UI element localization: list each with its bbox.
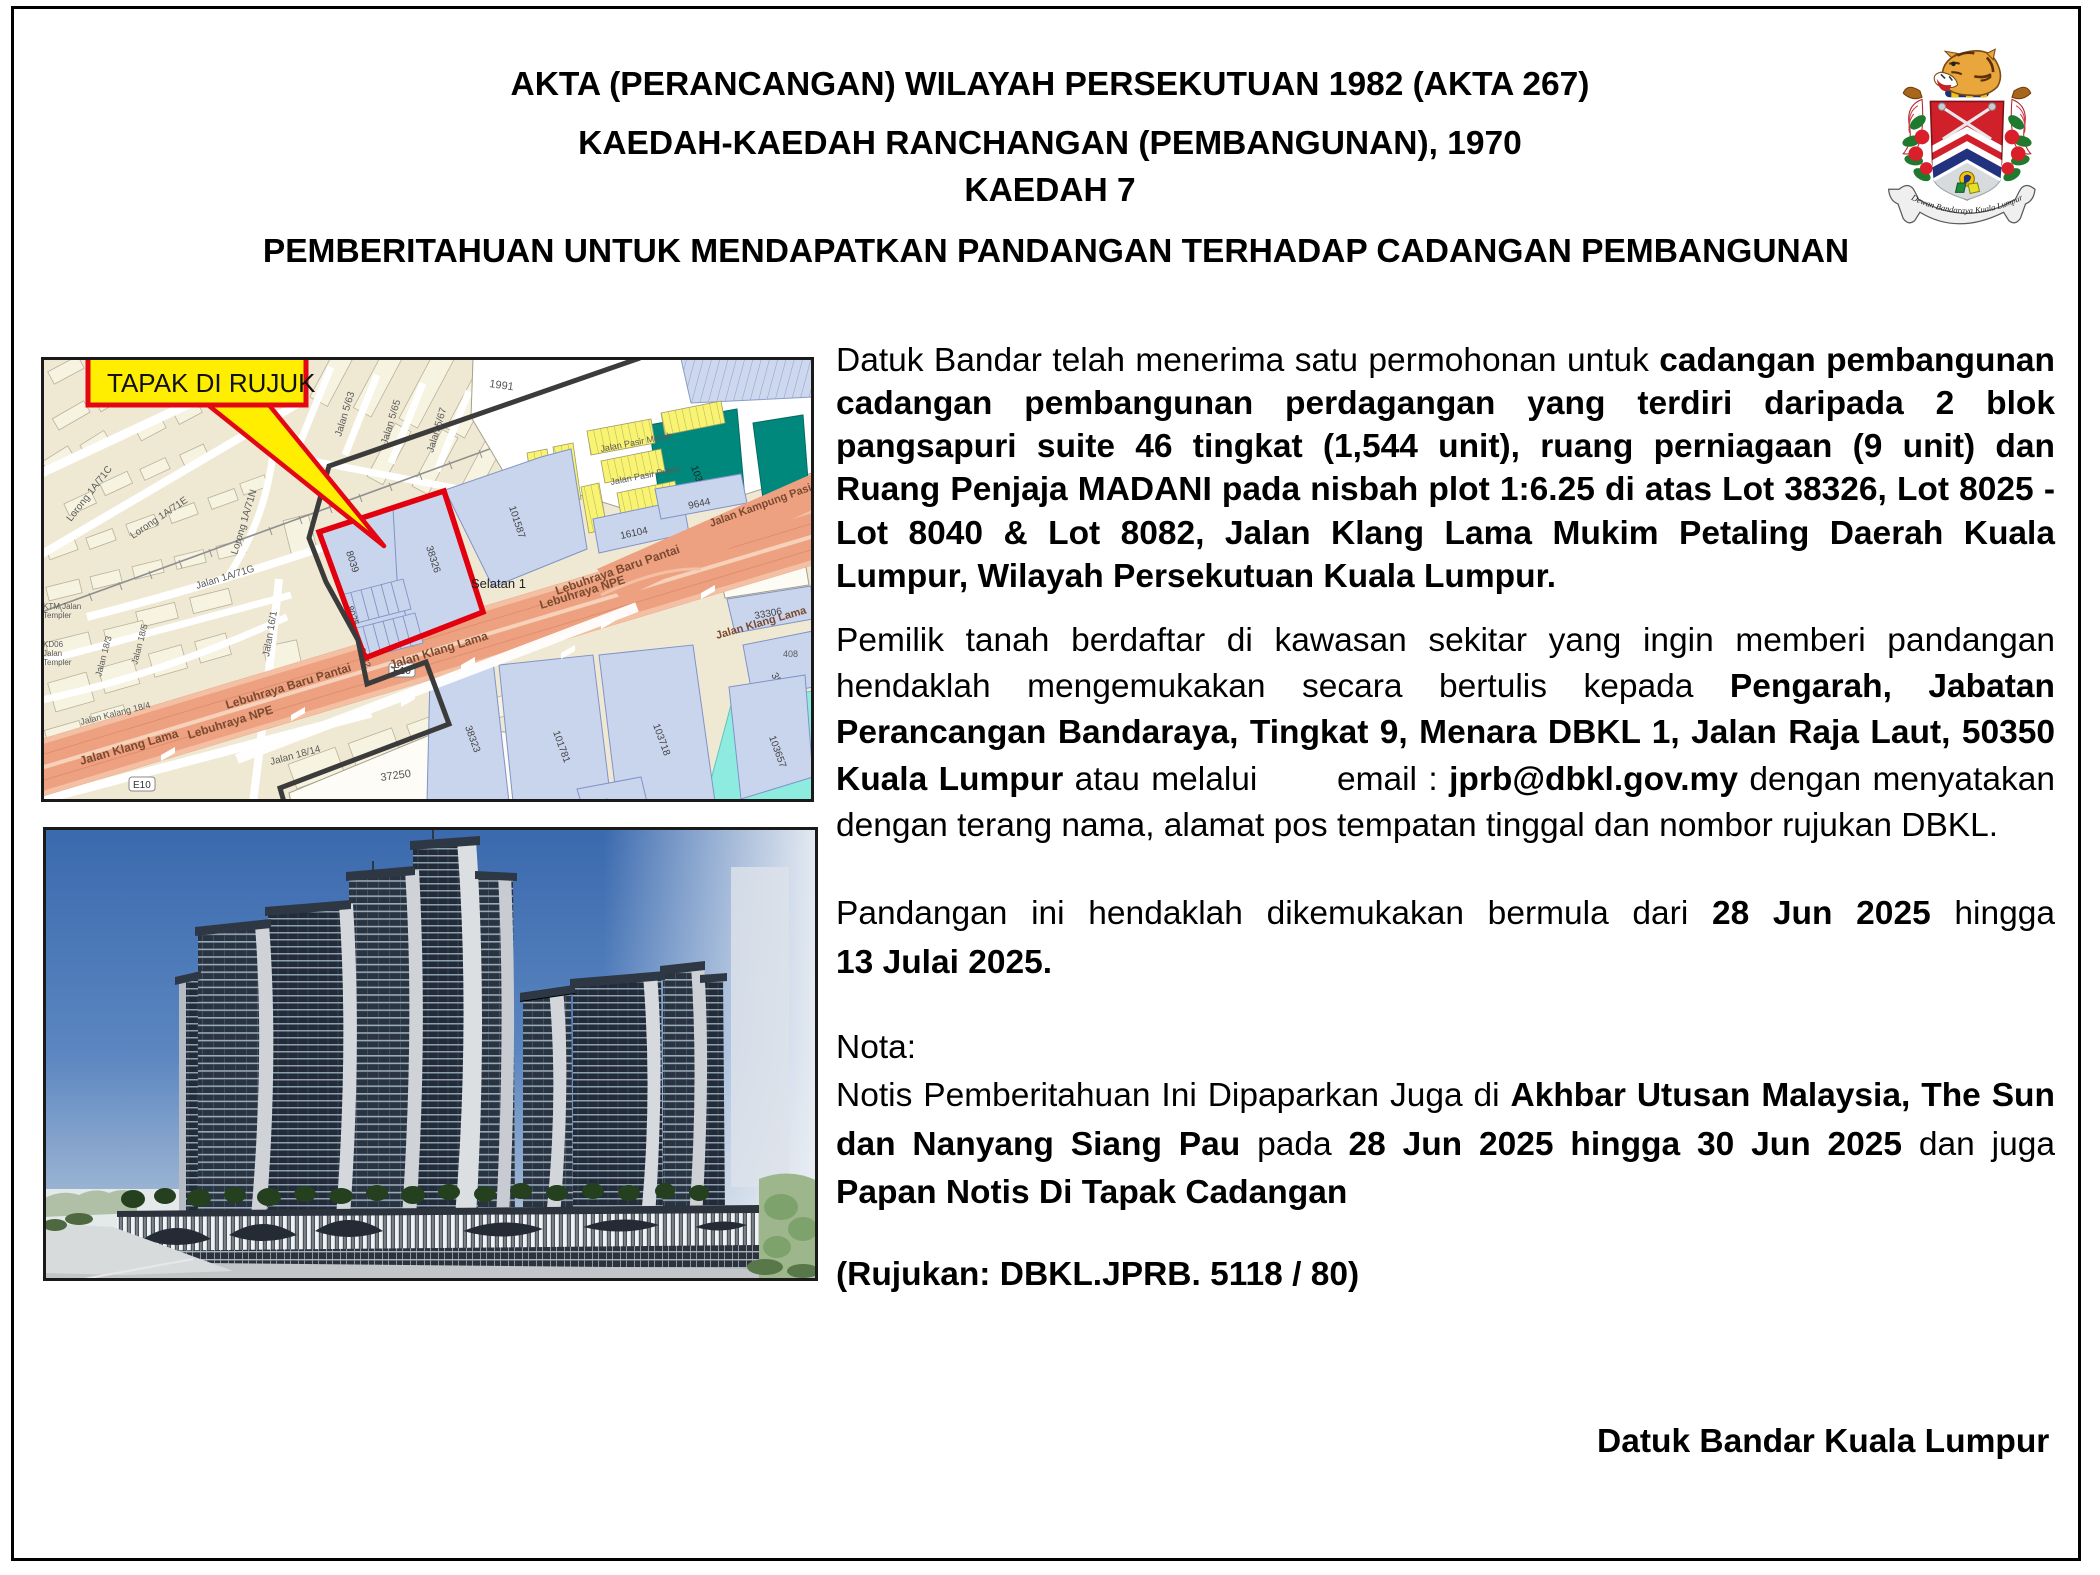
svg-text:TAPAK DI RUJUK: TAPAK DI RUJUK [107,368,316,398]
svg-text:KTM Jalan: KTM Jalan [43,602,81,611]
svg-text:E10: E10 [133,780,151,791]
svg-text:Selatan 1: Selatan 1 [471,576,526,591]
svg-text:Templer: Templer [43,611,72,620]
svg-text:Templer: Templer [43,658,72,667]
svg-text:KD06: KD06 [43,640,64,649]
svg-text:408: 408 [783,649,798,659]
svg-text:Jalan: Jalan [43,649,62,658]
